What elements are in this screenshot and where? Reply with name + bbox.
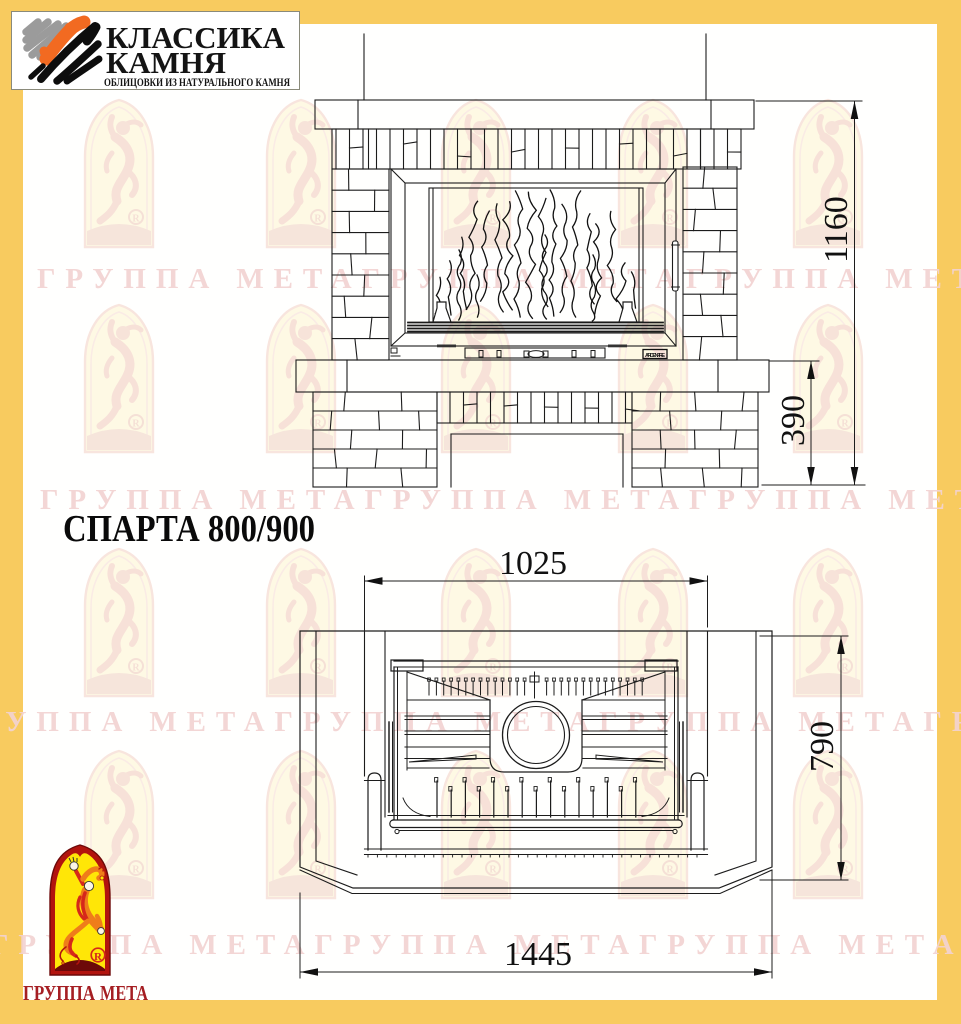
svg-text:КАМНЯ: КАМНЯ: [106, 45, 226, 80]
svg-text:ОБЛИЦОВКИ ИЗ НАТУРАЛЬНОГО КАМН: ОБЛИЦОВКИ ИЗ НАТУРАЛЬНОГО КАМНЯ: [104, 77, 291, 89]
